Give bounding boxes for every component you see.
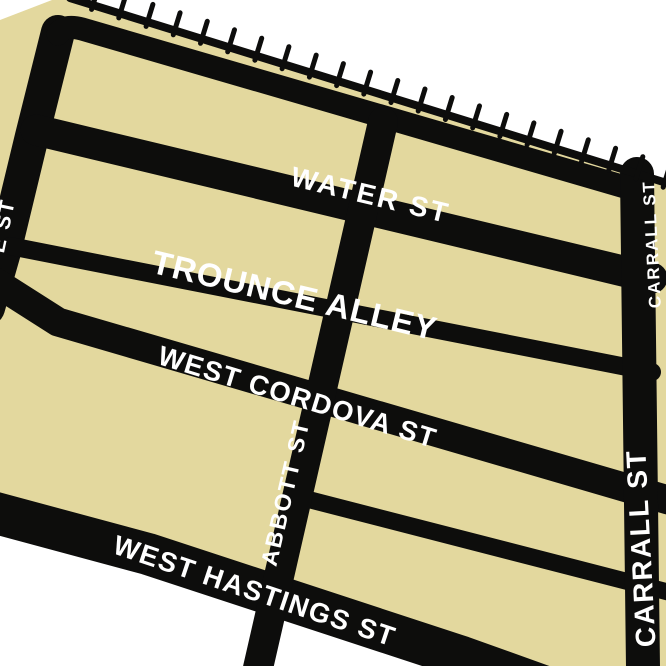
map-canvas: WATER ST TROUNCE ALLEY WEST CORDOVA ST W…	[0, 0, 666, 666]
map-print: WATER ST TROUNCE ALLEY WEST CORDOVA ST W…	[0, 0, 666, 666]
